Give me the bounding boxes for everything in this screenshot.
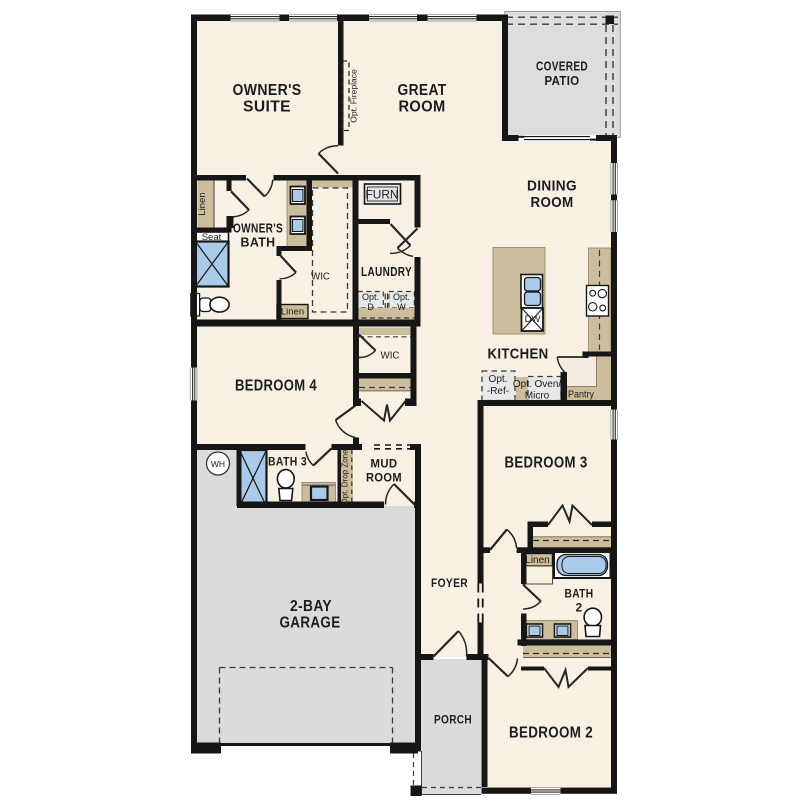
svg-text:Opt. Drop Zone: Opt. Drop Zone xyxy=(341,449,350,505)
svg-text:MUD: MUD xyxy=(371,459,398,471)
svg-text:Micro: Micro xyxy=(525,391,550,402)
svg-text:Seat: Seat xyxy=(202,232,222,243)
svg-text:GREAT: GREAT xyxy=(398,82,447,99)
svg-text:Linen: Linen xyxy=(281,307,304,318)
svg-text:BATH 3: BATH 3 xyxy=(268,455,307,469)
svg-text:-Ref-: -Ref- xyxy=(487,386,509,397)
svg-text:BEDROOM 3: BEDROOM 3 xyxy=(505,455,588,472)
svg-text:PORCH: PORCH xyxy=(434,713,472,727)
svg-text:OWNER'S: OWNER'S xyxy=(233,221,283,236)
svg-text:2-BAY: 2-BAY xyxy=(290,598,332,615)
svg-text:Opt.: Opt. xyxy=(489,374,508,385)
svg-text:BATH: BATH xyxy=(565,587,594,601)
svg-text:BEDROOM 2: BEDROOM 2 xyxy=(509,725,593,742)
svg-text:D: D xyxy=(367,302,374,312)
svg-text:2: 2 xyxy=(575,601,582,615)
svg-text:OWNER'S: OWNER'S xyxy=(233,82,302,99)
svg-text:Linen: Linen xyxy=(525,555,549,566)
svg-text:DINING: DINING xyxy=(527,178,577,195)
svg-text:ROOM: ROOM xyxy=(531,194,574,211)
svg-text:WH: WH xyxy=(211,459,225,469)
svg-text:WIC: WIC xyxy=(311,271,330,283)
svg-text:Opt. Oven/: Opt. Oven/ xyxy=(513,379,562,390)
svg-text:Opt. Fireplace: Opt. Fireplace xyxy=(349,69,359,123)
svg-text:GARAGE: GARAGE xyxy=(280,615,341,632)
svg-text:Opt.: Opt. xyxy=(362,292,379,302)
svg-text:ROOM: ROOM xyxy=(366,473,402,485)
svg-text:KITCHEN: KITCHEN xyxy=(488,346,549,363)
svg-text:LAUNDRY: LAUNDRY xyxy=(361,265,412,279)
svg-text:PATIO: PATIO xyxy=(545,74,580,88)
svg-text:COVERED: COVERED xyxy=(536,60,588,74)
svg-text:Linen: Linen xyxy=(197,192,208,215)
svg-text:BATH: BATH xyxy=(241,235,276,250)
svg-text:W: W xyxy=(397,302,406,312)
svg-text:Pantry: Pantry xyxy=(568,390,594,401)
svg-text:BEDROOM 4: BEDROOM 4 xyxy=(235,378,317,395)
svg-text:FOYER: FOYER xyxy=(431,576,468,590)
svg-text:Opt.: Opt. xyxy=(393,292,410,302)
svg-text:WIC: WIC xyxy=(381,351,400,362)
svg-text:FURN: FURN xyxy=(366,190,399,202)
svg-text:DW: DW xyxy=(525,314,541,325)
svg-text:ROOM: ROOM xyxy=(399,99,446,116)
svg-text:SUITE: SUITE xyxy=(243,99,291,116)
